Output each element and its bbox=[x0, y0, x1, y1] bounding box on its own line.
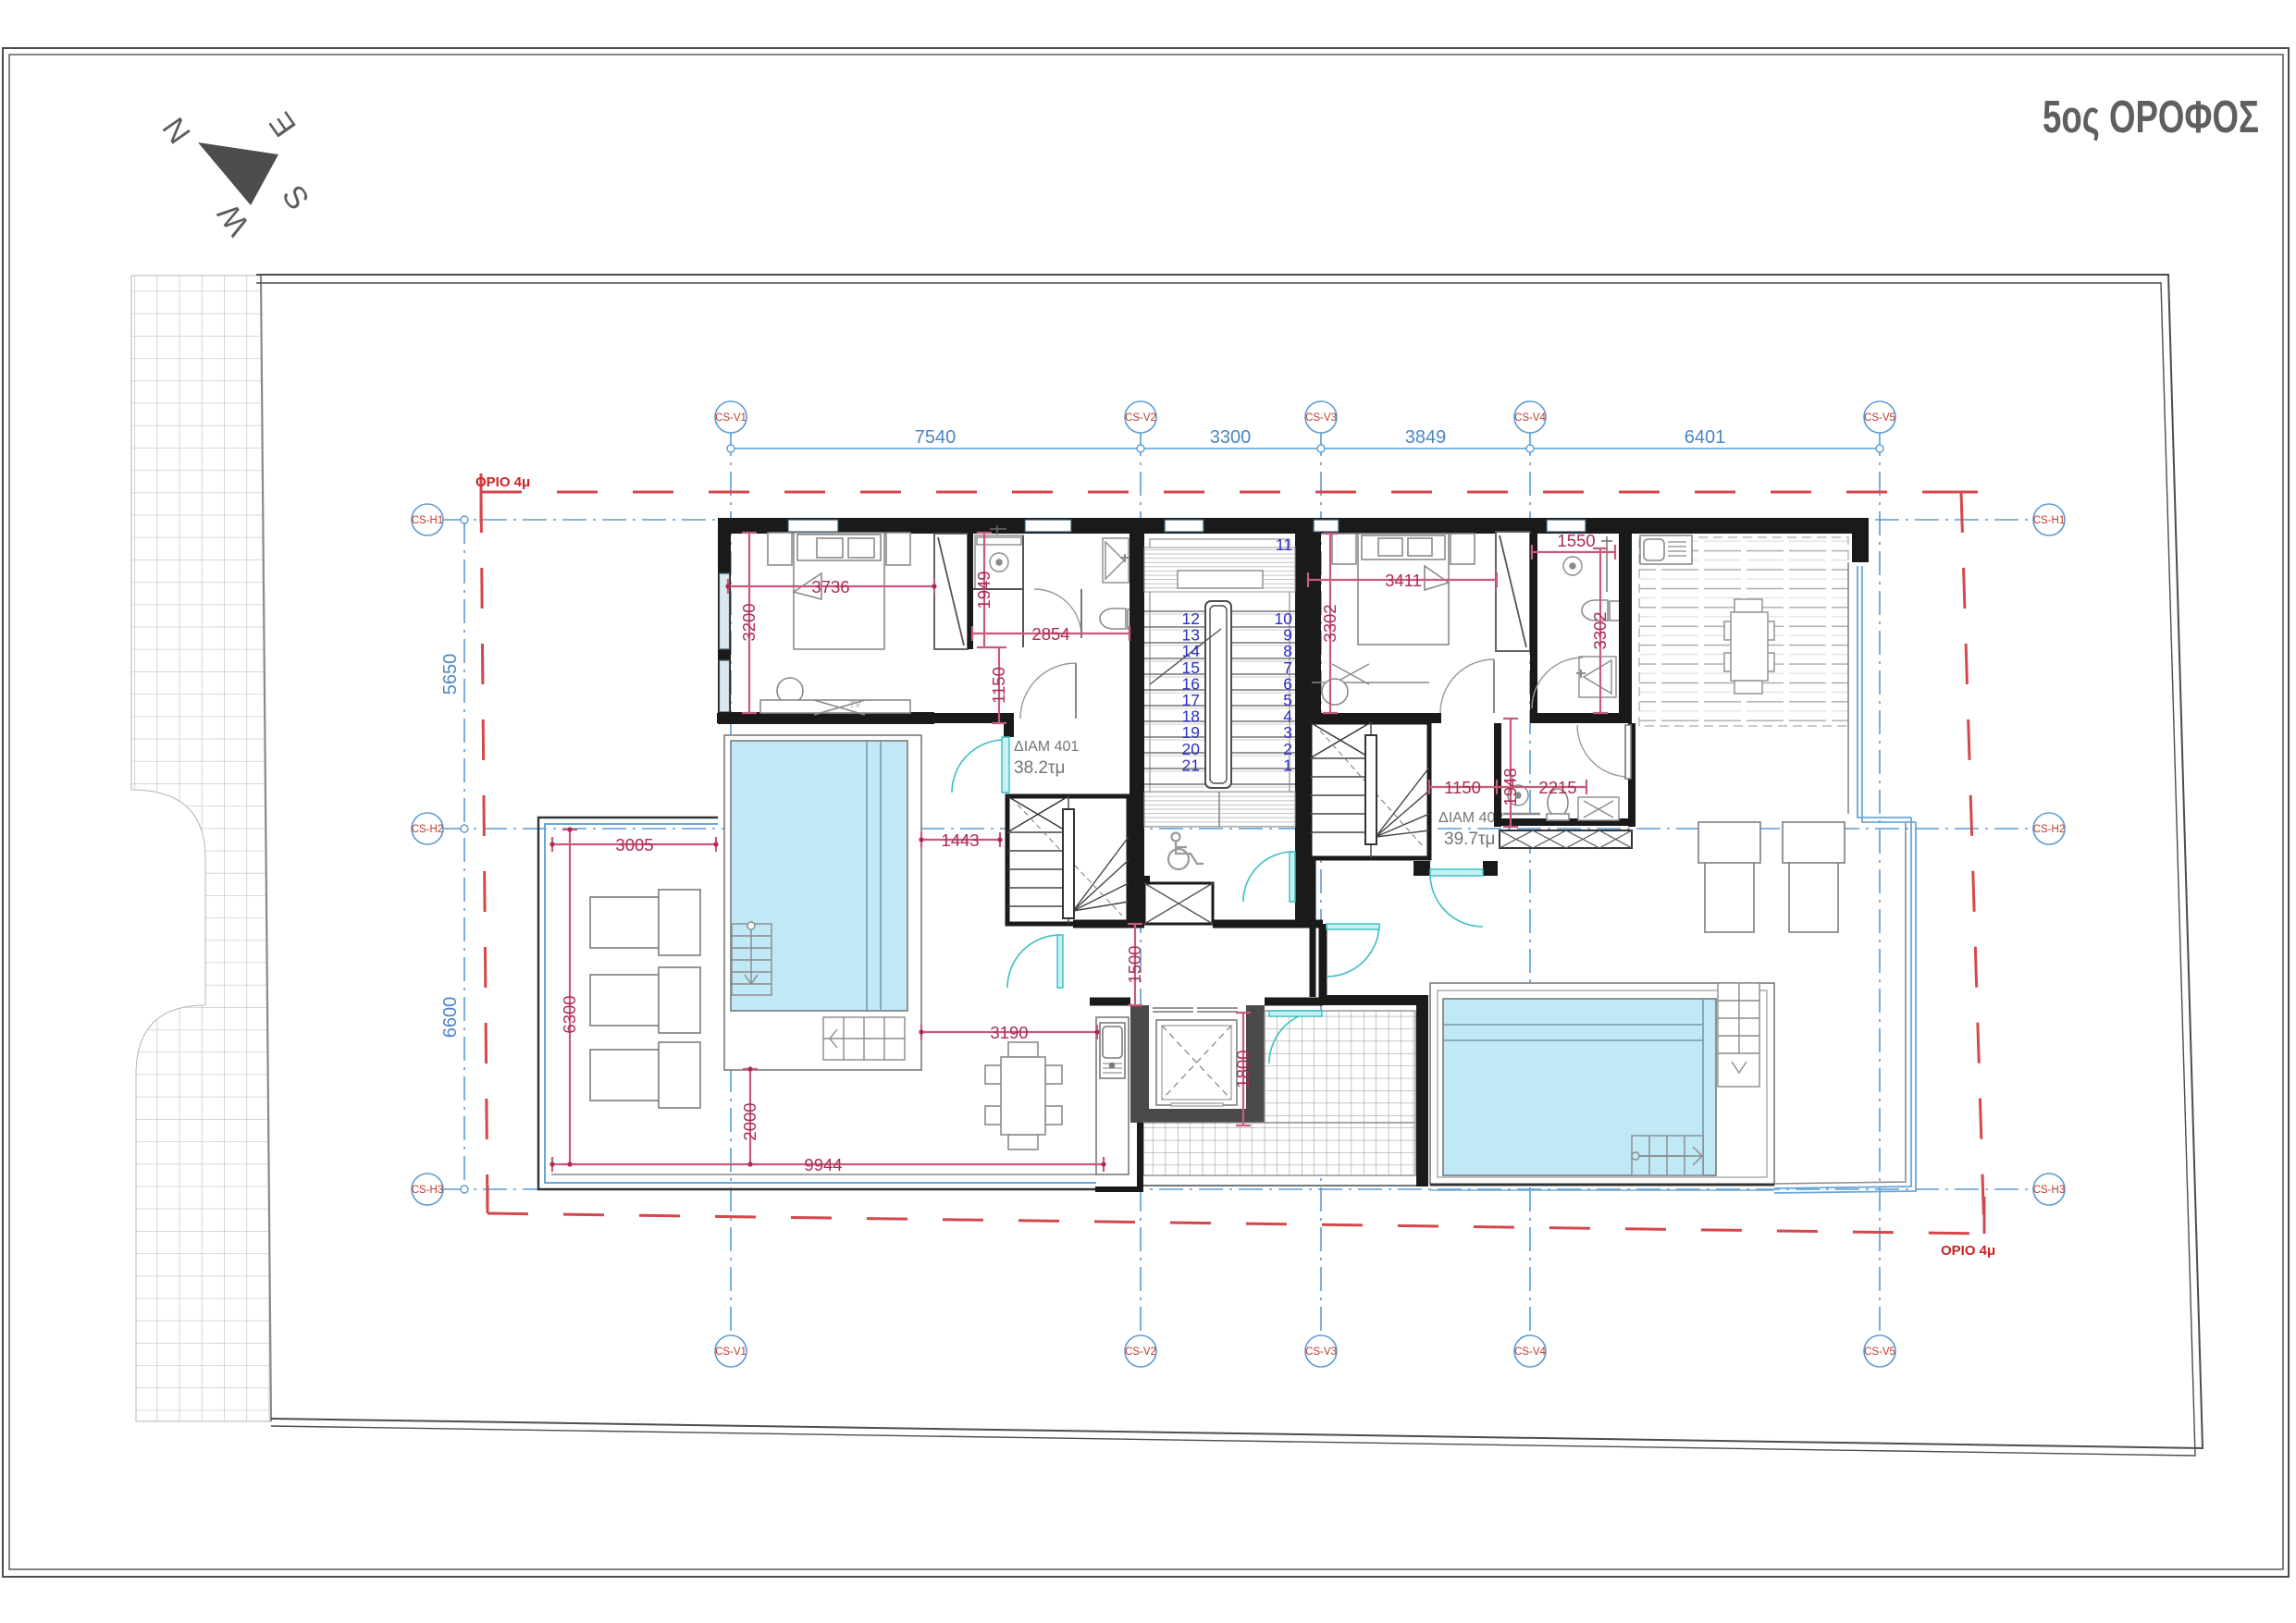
svg-text:CS-H3: CS-H3 bbox=[2033, 1185, 2066, 1196]
svg-text:21: 21 bbox=[1182, 756, 1200, 774]
svg-text:ΟΡΙΟ 4μ: ΟΡΙΟ 4μ bbox=[1941, 1243, 1995, 1259]
svg-text:3411: 3411 bbox=[1385, 571, 1422, 590]
svg-text:ΔΙΑΜ 401: ΔΙΑΜ 401 bbox=[1014, 739, 1079, 755]
svg-text:CS-H2: CS-H2 bbox=[2033, 824, 2066, 835]
svg-text:1150: 1150 bbox=[1444, 778, 1481, 797]
svg-text:3849: 3849 bbox=[1405, 427, 1447, 448]
svg-text:CS-V3: CS-V3 bbox=[1305, 412, 1337, 424]
svg-text:11: 11 bbox=[1276, 535, 1292, 554]
svg-text:CS-H2: CS-H2 bbox=[412, 824, 444, 835]
svg-text:CS-V1: CS-V1 bbox=[715, 412, 747, 424]
svg-text:3200: 3200 bbox=[739, 603, 759, 641]
svg-text:6401: 6401 bbox=[1685, 427, 1726, 448]
svg-text:7540: 7540 bbox=[915, 427, 957, 448]
svg-text:6300: 6300 bbox=[560, 995, 579, 1033]
svg-text:3005: 3005 bbox=[615, 835, 653, 855]
svg-text:2854: 2854 bbox=[1031, 624, 1069, 644]
svg-text:3736: 3736 bbox=[811, 577, 849, 596]
svg-text:CS-H1: CS-H1 bbox=[2033, 515, 2066, 526]
svg-text:1443: 1443 bbox=[941, 830, 979, 850]
svg-text:38.2τμ: 38.2τμ bbox=[1014, 758, 1065, 778]
svg-text:1948: 1948 bbox=[1500, 768, 1520, 805]
svg-text:3300: 3300 bbox=[1210, 427, 1252, 448]
svg-text:2215: 2215 bbox=[1538, 778, 1576, 797]
svg-text:5ος ΟΡΟΦΟΣ: 5ος ΟΡΟΦΟΣ bbox=[2043, 92, 2259, 142]
svg-text:CS-V2: CS-V2 bbox=[1125, 1346, 1156, 1358]
svg-text:CS-V4: CS-V4 bbox=[1514, 412, 1546, 424]
svg-text:1150: 1150 bbox=[989, 667, 1008, 704]
svg-text:CS-V5: CS-V5 bbox=[1864, 412, 1895, 424]
svg-text:CS-H3: CS-H3 bbox=[412, 1185, 444, 1196]
svg-text:5650: 5650 bbox=[440, 654, 461, 695]
svg-text:ΟΡΙΟ 4μ: ΟΡΙΟ 4μ bbox=[475, 474, 530, 490]
svg-text:1800: 1800 bbox=[1233, 1050, 1253, 1088]
svg-text:9944: 9944 bbox=[804, 1155, 842, 1174]
svg-text:39.7τμ: 39.7τμ bbox=[1444, 830, 1495, 849]
svg-text:1: 1 bbox=[1283, 756, 1292, 774]
svg-text:CS-H1: CS-H1 bbox=[412, 515, 444, 526]
svg-text:3302: 3302 bbox=[1590, 611, 1610, 649]
svg-text:CS-V1: CS-V1 bbox=[715, 1346, 747, 1358]
svg-text:3302: 3302 bbox=[1320, 604, 1339, 642]
svg-text:CS-V3: CS-V3 bbox=[1305, 1346, 1337, 1358]
svg-text:6600: 6600 bbox=[440, 997, 461, 1039]
svg-text:2000: 2000 bbox=[740, 1102, 759, 1140]
svg-text:CS-V5: CS-V5 bbox=[1864, 1346, 1895, 1358]
svg-text:CS-V4: CS-V4 bbox=[1514, 1346, 1546, 1358]
svg-text:1550: 1550 bbox=[1557, 531, 1595, 550]
svg-text:CS-V2: CS-V2 bbox=[1125, 412, 1156, 424]
svg-text:1500: 1500 bbox=[1125, 945, 1144, 983]
svg-text:1949: 1949 bbox=[974, 571, 994, 609]
svg-text:ΔΙΑΜ 402: ΔΙΑΜ 402 bbox=[1438, 810, 1503, 826]
svg-text:3190: 3190 bbox=[990, 1023, 1028, 1042]
